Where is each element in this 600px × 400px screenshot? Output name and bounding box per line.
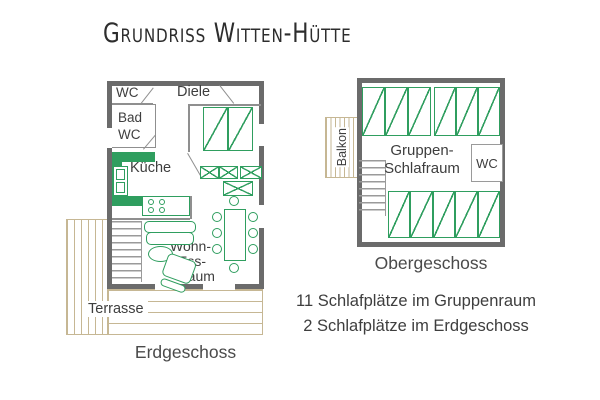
chair-symbol: [229, 263, 239, 273]
bed-symbol: [388, 191, 410, 238]
floor-plan-canvas: Grundriss Witten-Hütte Terrasse WC Diele…: [0, 0, 600, 400]
ground-floor-caption: Erdgeschoss: [107, 342, 264, 363]
page-title: Grundriss Witten-Hütte: [103, 18, 352, 49]
bed-symbol: [456, 87, 478, 136]
bed-row-upper-bottom: [388, 191, 500, 238]
sofa-seat: [146, 232, 194, 245]
bed-symbol: [408, 87, 431, 136]
diele-label: Diele: [177, 84, 210, 100]
dining-table: [224, 209, 246, 261]
note-line-2: 2 Schlafplätze im Erdgeschoss: [268, 314, 564, 339]
bad-label-line1: Bad: [118, 110, 142, 125]
bed-row-upper-top-left: [362, 87, 431, 136]
bed-symbol: [478, 191, 500, 238]
bed-symbol: [434, 87, 456, 136]
chair-symbol: [212, 228, 222, 238]
wall-bedroom-top: [188, 104, 261, 106]
balkon-deck: Balkon: [325, 117, 358, 178]
window-gap: [257, 205, 265, 228]
wall-kitchen-right: [190, 196, 192, 219]
stairs-ground: [112, 221, 142, 282]
bad-label-line2: WC: [118, 127, 141, 142]
chair-symbol: [212, 212, 222, 222]
kueche-label: Küche: [130, 160, 171, 176]
schlafraum-label: Gruppen- Schlafraum: [380, 142, 464, 177]
room-wc-upper: WC: [471, 144, 503, 182]
cabinet-x: [223, 181, 253, 196]
window-gap: [257, 124, 265, 146]
bed-symbol: [433, 191, 455, 238]
upper-floor-caption: Obergeschoss: [357, 253, 505, 274]
bed-symbol: [203, 107, 228, 151]
terrasse-label: Terrasse: [84, 300, 148, 318]
chair-symbol: [248, 244, 258, 254]
wall-kitchen-bottom: [112, 218, 190, 220]
stove-symbol: [142, 196, 190, 216]
bed-symbol: [478, 87, 500, 136]
bed-row-ground: [203, 107, 253, 151]
cabinet-x: [240, 166, 262, 179]
fridge-symbol: [113, 166, 128, 196]
chair-symbol: [248, 228, 258, 238]
bed-row-upper-top-right: [434, 87, 500, 136]
balkon-label: Balkon: [335, 127, 349, 167]
chair-symbol: [248, 212, 258, 222]
note-line-1: 11 Schlafplätze im Gruppenraum: [268, 289, 564, 314]
wc-upper-label: WC: [476, 156, 498, 171]
bed-symbol: [410, 191, 432, 238]
wall-bedroom-left: [188, 104, 190, 152]
wc-label: WC: [116, 85, 139, 100]
cabinet-x: [200, 166, 238, 179]
sleeping-places-notes: 11 Schlafplätze im Gruppenraum 2 Schlafp…: [268, 289, 564, 339]
bed-symbol: [228, 107, 253, 151]
chair-symbol: [212, 244, 222, 254]
chair-symbol: [229, 196, 239, 206]
bed-symbol: [455, 191, 477, 238]
kitchen-counter-bottom: [112, 196, 142, 206]
bed-symbol: [362, 87, 385, 136]
bed-symbol: [385, 87, 408, 136]
